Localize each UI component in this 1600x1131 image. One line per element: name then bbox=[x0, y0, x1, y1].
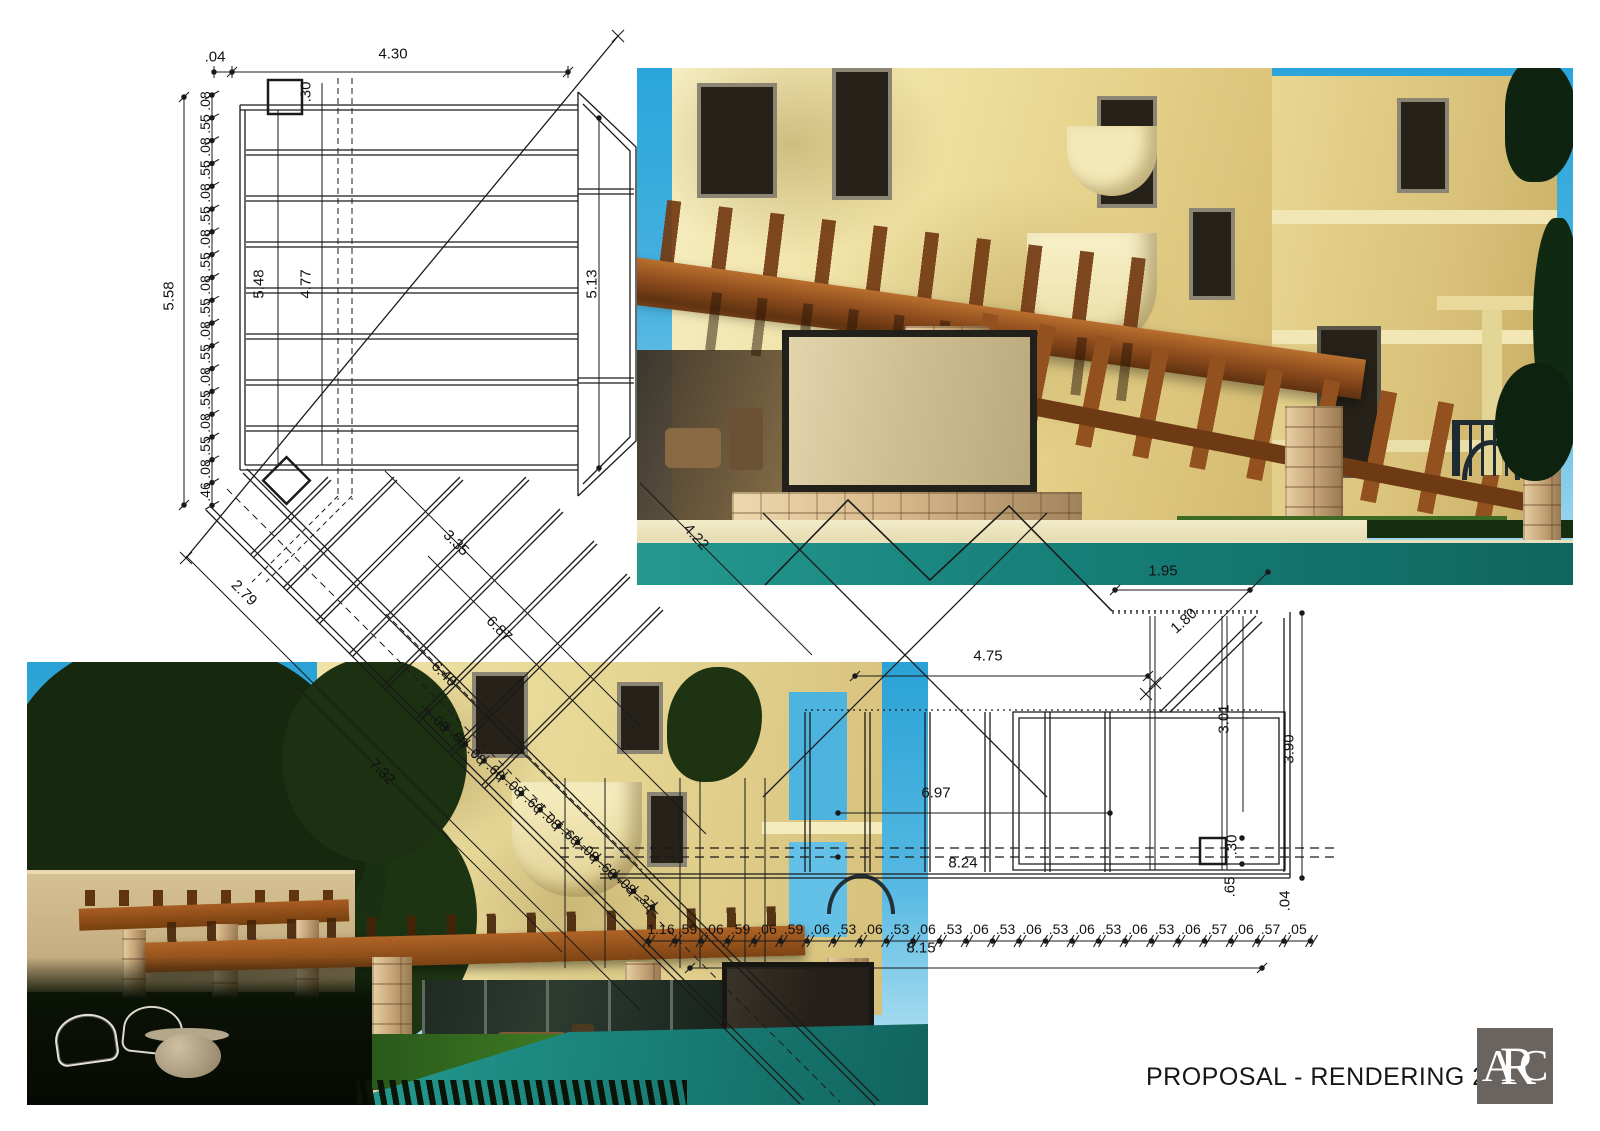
plan-right-dimension-lines bbox=[648, 572, 1310, 968]
leader-lines bbox=[765, 500, 1258, 611]
dimension-ticks bbox=[179, 30, 1318, 973]
plan-outline bbox=[240, 78, 636, 504]
sheet-title: PROPOSAL - RENDERING 2019 bbox=[1146, 1063, 1530, 1092]
arc-logo: ARC bbox=[1477, 1028, 1553, 1104]
diagonal-section bbox=[186, 469, 879, 1105]
plan-right-outline bbox=[560, 612, 1336, 968]
drawing-linework bbox=[0, 0, 1600, 1131]
proposal-sheet: .044.30.305.585.484.775.133.352.796.876.… bbox=[0, 0, 1600, 1131]
logo-letter-c: C bbox=[1519, 1046, 1548, 1086]
plan-dimension-lines bbox=[184, 66, 568, 505]
